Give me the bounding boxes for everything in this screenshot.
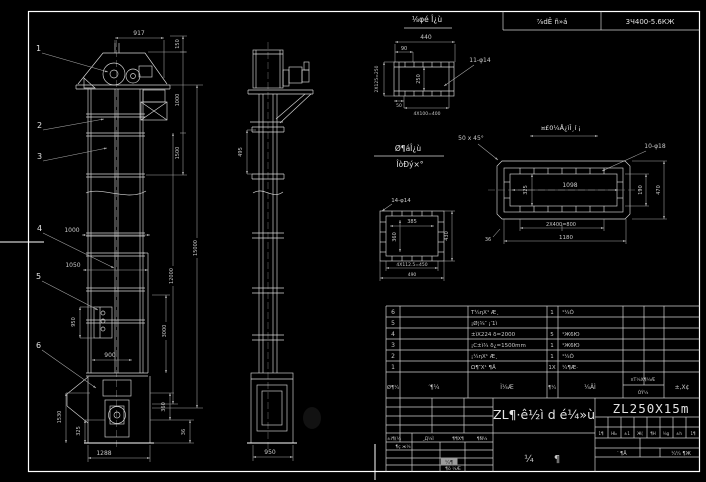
smudge [303, 407, 321, 429]
bom-name: Τ¼ηХ¹ Æ¸ [470, 309, 499, 316]
note-14-phi14: 14-φ14 [391, 198, 411, 204]
bom-header-qty: ¶¼ [548, 385, 556, 391]
section-label-line2: ÎòÐý×° [396, 160, 423, 169]
callout-5: 5 [36, 272, 41, 281]
dim-360-square-label: 360 [392, 232, 398, 242]
bom-row: 4 ±ìХ224 δ=2000 5 ¹Ж6Ю [391, 331, 580, 338]
dim-150-label: 150 [175, 39, 181, 49]
dim-12000-label: 12000 [169, 268, 175, 284]
bom-name: ¡¼ηХ¹ Æ¸ [471, 353, 498, 360]
bom-row: 5 ¡Ø¦­¾″ ¡′1ì [391, 320, 497, 327]
title-block: ±ì¶(¼ ¸Д¼Ì ¶¶Х¶ ¶Ñ¼ ¶ç ж¼ ¼¶ ¶ö ¼Æ ZL¶·ê… [386, 398, 700, 472]
bom-row: 1 Ω¶″Х¹ ¶Ä 1Х ¼¶Æ· [391, 364, 578, 371]
dim-917-label: 917 [133, 30, 145, 37]
bom-no: 5 [391, 320, 395, 327]
break-line [86, 191, 146, 195]
bom-qty: 1 [550, 343, 554, 349]
rev-header-3: ¶¶Х¶ [452, 436, 464, 442]
dim-900-label: 900 [104, 352, 116, 359]
dim-495-label: 495 [238, 147, 244, 157]
top-header-table: ⅞dÊ ñ»á 3Ч400-5.6КЖ [503, 12, 700, 31]
rev-header-4: ¶Ñ¼ [477, 435, 488, 442]
dim-3000-label: 3000 [162, 325, 168, 338]
callout-4: 4 [37, 224, 42, 233]
info-header-1: 1¶ [598, 431, 604, 436]
callout-3: 3 [37, 152, 42, 161]
bom-mat: ¹Ж6Ю [562, 331, 580, 338]
dim-1530-label: 1530 [57, 411, 63, 424]
dim-2x125-label: 2Х125=250 [374, 65, 380, 92]
dim-440-label: 440 [420, 34, 432, 41]
bom-mat: ¹¼Ó [562, 353, 575, 360]
dim-50-label: 50 [396, 103, 402, 109]
dim-15000-label: 15000 [193, 240, 199, 256]
detail-b-title: ¤£0¼Å¿ìÎ¸í ¡ [541, 123, 581, 132]
dim-490-label: 490 [408, 272, 417, 278]
callout-balloons: 1 2 3 4 5 6 [36, 44, 114, 388]
bom-header-weight-top: ¤Т¼Х¶¼Æ [631, 377, 656, 383]
dim-1098-label: 1098 [562, 182, 577, 189]
rev-header-2: ¸Д¼Ì [422, 435, 433, 442]
dim-1180-label: 1180 [559, 235, 573, 241]
info-header-6: ¼g [663, 431, 670, 436]
info-header-3: ±1 [624, 431, 630, 436]
sheets-label-2: ¼¼ ¶Ж [671, 451, 691, 457]
bom-header-no: Ø¶¼ [387, 384, 399, 391]
bom-header-row: Ø¶¼ ′¶¼ Ì¼Æ ¶¼ ¼ÄÌ ¤Т¼Х¶¼Æ ÓÝ¼ ±,Х¢ [387, 377, 690, 396]
dim-250-label: 250 [416, 74, 422, 84]
note-10-phi18: 10-φ18 [644, 143, 666, 150]
dim-1500-label: 1500 [175, 147, 181, 160]
bom-name: ¡Ø¦­¾″ ¡′1ì [471, 320, 497, 327]
front-flanges [86, 114, 145, 323]
info-header-2: НЬ [611, 431, 617, 436]
note-chamfer: 50 x 45° [458, 135, 484, 142]
dim-325-front-label: 325 [76, 426, 82, 436]
dim-385-label: 385 [407, 219, 417, 225]
bom-qty: 5 [550, 332, 554, 338]
header-cell-label: ⅞dÊ ñ»á [537, 17, 568, 26]
bom-header-remark: ±,Х¢ [675, 384, 690, 391]
callout-2: 2 [37, 121, 42, 130]
model-number: ZL250X15m [613, 401, 690, 416]
detail-view-square-flange: 14-φ14 385 360 430 4Х112.5=450 490 [380, 198, 455, 281]
callout-6: 6 [36, 341, 41, 350]
cad-drawing-sheet: ⅞dÊ ñ»á 3Ч400-5.6КЖ [0, 0, 706, 482]
dim-1000-left-label: 1000 [64, 227, 79, 234]
dim-430-label: 430 [444, 231, 450, 241]
dim-36-front-label: 36 [181, 429, 187, 435]
info-header-5: ¶Н [650, 431, 656, 436]
dim-2x400-label: 2Х400=800 [546, 222, 576, 228]
dim-470-label: 470 [656, 185, 662, 195]
bom-name: ±ìХ224 δ=2000 [471, 331, 516, 338]
section-label: Ø¶áÎ¿ù ÎòÐý×° [374, 144, 444, 169]
rev-note: ¶ç ж¼ [395, 444, 411, 450]
info-header-8: 1¶ [690, 431, 696, 436]
stamp-right: ¶ [554, 454, 560, 465]
dim-4x100-label: 4Х100=400 [414, 111, 441, 117]
dim-36-plate-label: 36 [485, 237, 491, 243]
sheets-label-1: ′ ¶Ä [617, 450, 627, 457]
bom-no: 4 [391, 331, 395, 338]
bom-name: Ω¶″Х¹ ¶Ä [471, 364, 496, 371]
stamp-left: ¼ [524, 453, 534, 465]
bom-header-weight-bot: ÓÝ¼ [638, 389, 649, 396]
drawing-svg: ⅞dÊ ñ»á 3Ч400-5.6КЖ [0, 0, 706, 482]
bom-qty: 1 [550, 310, 554, 316]
detail-view-flange-plate: ¤£0¼Å¿ìÎ¸í ¡ 50 x 45° 10-φ18 1098 325 19… [458, 123, 667, 244]
info-header-4: Ж( [637, 431, 643, 436]
info-header-7: ±h [676, 431, 682, 436]
bom-qty: 1Х [548, 365, 555, 371]
dim-325-plate-label: 325 [523, 185, 529, 195]
dim-1000-right-label: 1000 [175, 94, 181, 107]
bom-mat: ¹¼Ó [562, 309, 575, 316]
bom-no: 1 [391, 364, 395, 371]
dim-190-label: 190 [638, 185, 644, 195]
bom-no: 6 [391, 309, 395, 316]
drawing-title: ZL¶·ê½ì d é¼»ù [493, 407, 595, 422]
bom-row: 3 ¡C±ì¾ δ¿=1500mm 1 ¹Ж6Ю [391, 342, 580, 349]
header-cell-value: 3Ч400-5.6КЖ [626, 18, 675, 26]
dim-360-label: 360 [161, 402, 167, 412]
dim-4x112-label: 4Х112.5=450 [396, 262, 427, 268]
side-elevation-view: 495 950 [238, 42, 321, 461]
bom-header-name: Ì¼Æ [500, 384, 514, 391]
bom-no: 2 [391, 353, 395, 360]
small-note: ¶ö ¼Æ [445, 466, 461, 472]
front-elevation-view: 917 150 1000 1500 15000 12000 3000 1000 … [36, 30, 203, 462]
bom-name: ¡C±ì¾ δ¿=1500mm [471, 342, 526, 349]
dim-1288-label: 1288 [96, 450, 111, 457]
detail-a-title: ⅛φé Î¿ù [412, 15, 442, 24]
detail-view-channel: ⅛φé Î¿ù 440 90 250 2Х125=250 50 4Х100=40… [374, 15, 491, 117]
highlighted-cell-text: ¼¶ [445, 460, 453, 466]
rev-header-1: ±ì¶(¼ [387, 435, 402, 442]
dim-950-side-label: 950 [264, 449, 276, 456]
bom-mat: ¹Ж6Ю [562, 342, 580, 349]
bom-no: 3 [391, 342, 395, 349]
dim-90-label: 90 [401, 46, 407, 52]
note-11-phi14: 11-φ14 [469, 57, 491, 64]
bom-header-mat: ¼ÄÌ [584, 384, 596, 391]
bom-qty: 1 [550, 354, 554, 360]
bom-header-dwg: ′¶¼ [429, 384, 440, 391]
callout-1: 1 [36, 44, 41, 53]
bom-mat: ¼¶Æ· [562, 365, 578, 371]
dim-950-front-label: 950 [71, 317, 77, 327]
section-label-line1: Ø¶áÎ¿ù [395, 144, 421, 153]
bom-table: 6 Τ¼ηХ¹ Æ¸ 1 ¹¼Ó 5 ¡Ø¦­¾″ ¡′1ì 4 ±ìХ224 … [386, 306, 700, 472]
dim-1050-label: 1050 [65, 262, 80, 269]
